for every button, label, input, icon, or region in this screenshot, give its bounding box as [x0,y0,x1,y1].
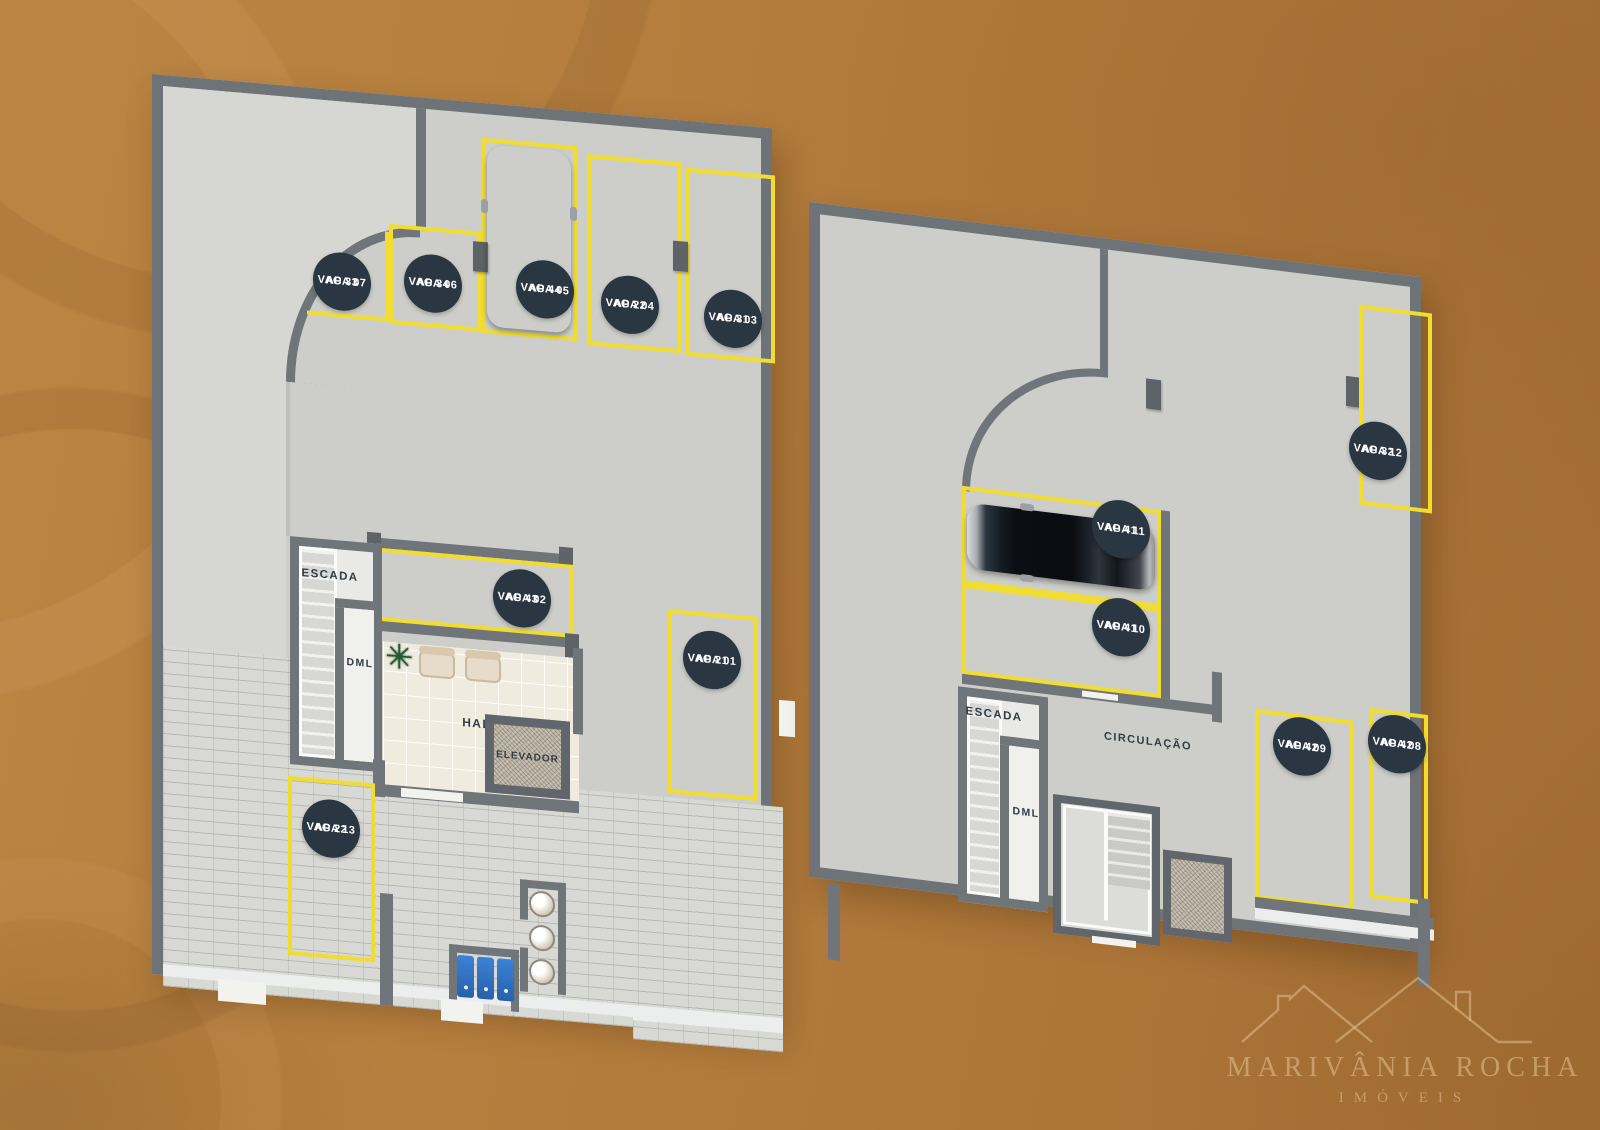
floor-plan-garage-2: CIRCULAÇÃO ESCADA DML AP 32VAGA 12 AP 41… [809,202,1421,952]
parking-spot-outline-vaga12 [1359,305,1432,514]
pillar [673,241,688,272]
pillar [1146,378,1161,410]
brand-watermark: MARIVÂNIA ROCHA IMÓVEIS [1225,972,1585,1107]
wall [1000,744,1009,907]
wall [1161,510,1170,699]
room-label-dml: DML [347,656,374,670]
roofline-logo-icon [1240,972,1570,1050]
chair [465,654,501,683]
bin [477,956,494,999]
wall [520,947,528,992]
entry-floor [163,86,416,229]
wall [1212,671,1222,722]
wall [573,648,583,735]
wall [520,879,528,920]
curved-wall [962,352,1108,509]
floorplan-render: ESCADA DML ✳ HALL ELEVADOR [0,0,1600,1130]
room-label-elevador: ELEVADOR [496,749,559,765]
bin [457,955,474,998]
elevator-shaft [1163,849,1232,942]
bin [497,958,514,1001]
door-threshold [218,979,266,1005]
wall-stub [828,883,840,960]
recycle-bins [457,955,517,1006]
plant-icon: ✳ [385,639,414,675]
floor-plan-garage-1: ESCADA DML ✳ HALL ELEVADOR [152,74,772,1028]
chair [419,650,455,679]
stair-rail [1104,812,1108,920]
entry-floor [163,206,286,679]
room-label-circulacao: CIRCULAÇÃO [1104,730,1192,753]
wall [335,607,344,769]
wall [449,944,457,1007]
elevator-shaft: ELEVADOR [485,714,570,799]
stair-treads [1108,813,1150,890]
stair-treads [967,696,1002,897]
wall [416,108,426,231]
door-threshold [779,700,795,737]
brand-subtitle: IMÓVEIS [1225,1090,1585,1107]
dml-floor [344,608,374,763]
dml-floor [1009,746,1039,902]
brand-name: MARIVÂNIA ROCHA [1225,1052,1585,1084]
floor-seam [286,382,290,536]
wall [558,883,566,996]
wall [1100,249,1108,372]
pillar [473,241,488,272]
door-threshold [441,998,483,1024]
wall [380,893,393,1006]
